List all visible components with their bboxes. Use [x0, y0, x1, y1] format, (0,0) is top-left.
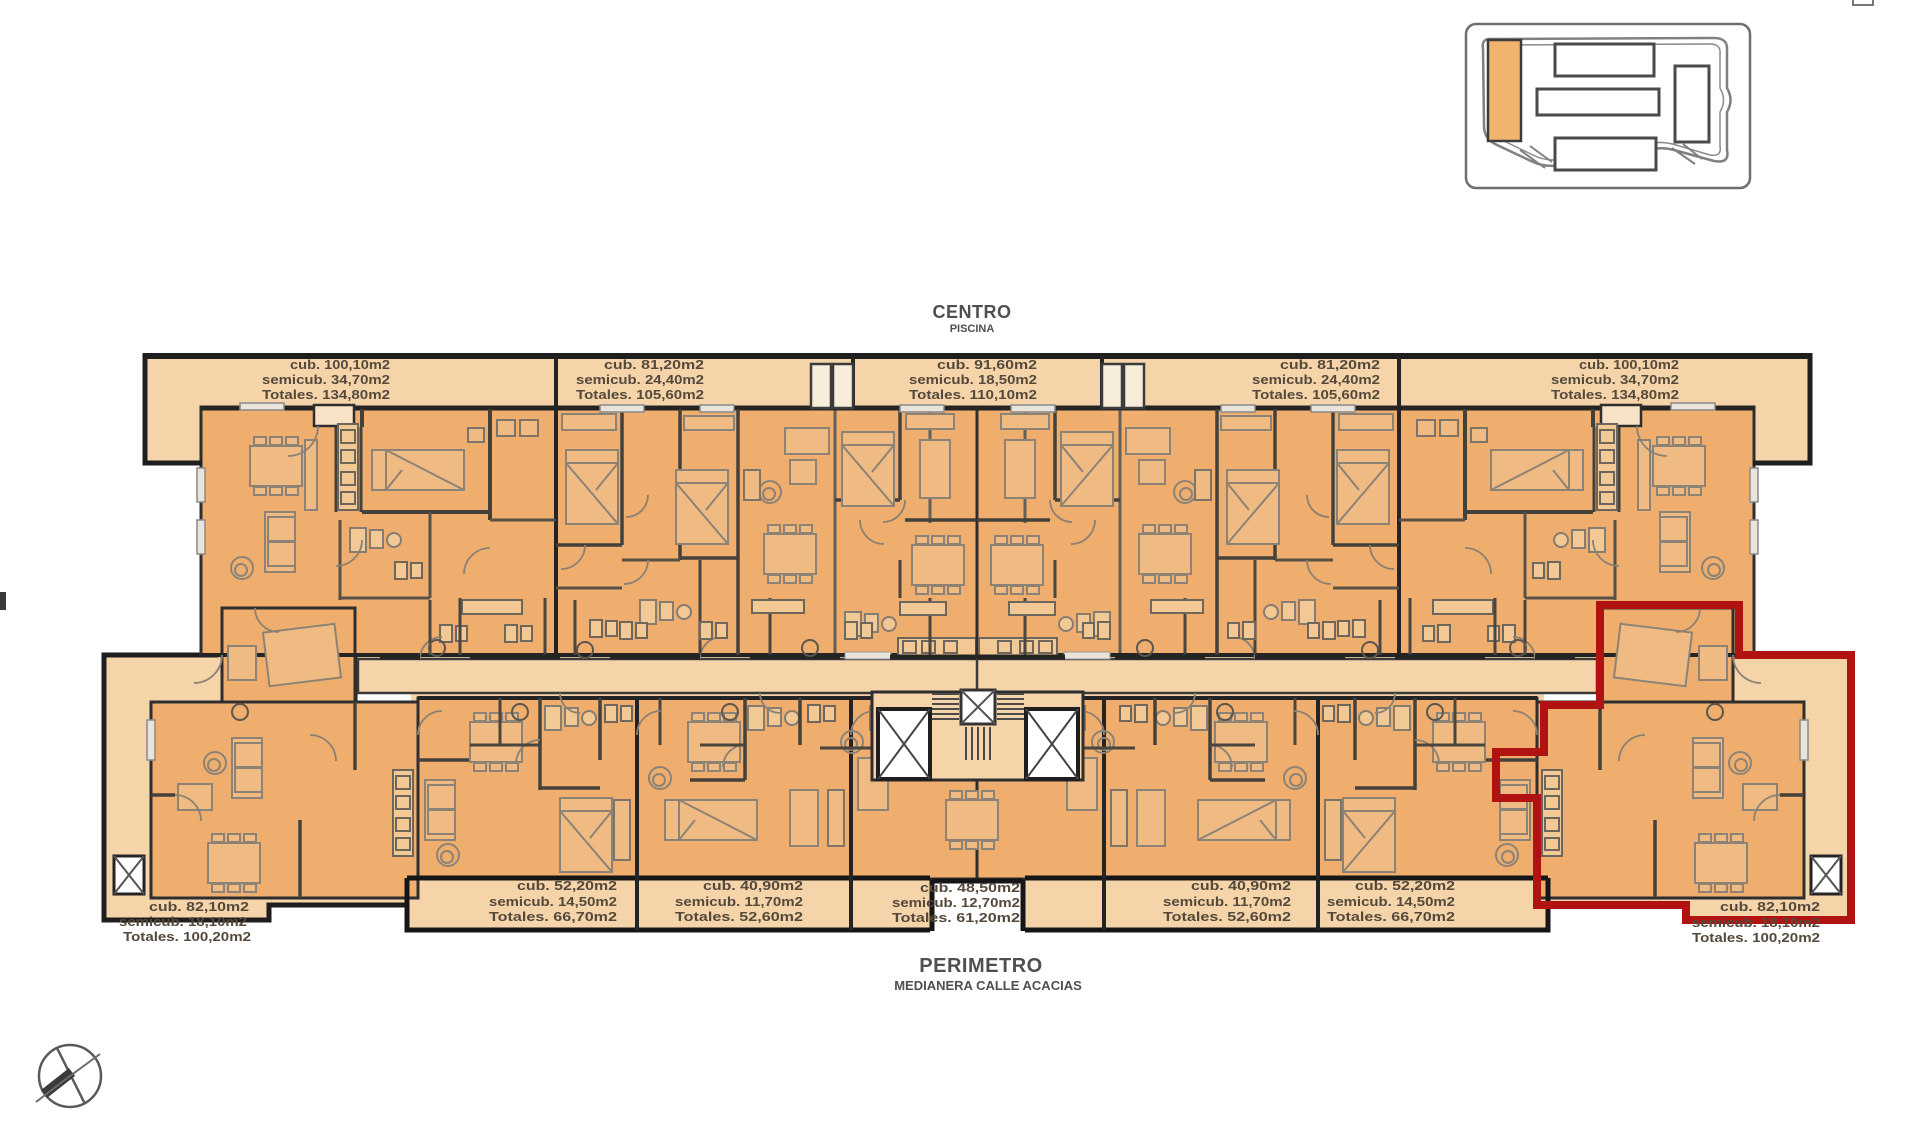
- svg-text:semicub. 34,70m2: semicub. 34,70m2: [1551, 372, 1679, 387]
- svg-text:cub. 82,10m2: cub. 82,10m2: [149, 899, 249, 914]
- svg-text:Totales. 52,60m2: Totales. 52,60m2: [1163, 909, 1291, 924]
- svg-text:semicub. 14,50m2: semicub. 14,50m2: [489, 894, 617, 909]
- svg-text:semicub. 18,10m2: semicub. 18,10m2: [119, 914, 247, 929]
- svg-text:CENTRO: CENTRO: [933, 302, 1012, 322]
- svg-text:PISCINA: PISCINA: [950, 323, 995, 335]
- svg-text:Totales. 61,20m2: Totales. 61,20m2: [892, 910, 1020, 925]
- svg-text:Totales. 134,80m2: Totales. 134,80m2: [262, 387, 390, 402]
- svg-text:semicub. 24,40m2: semicub. 24,40m2: [576, 372, 704, 387]
- svg-text:semicub. 24,40m2: semicub. 24,40m2: [1252, 372, 1380, 387]
- svg-text:cub. 40,90m2: cub. 40,90m2: [1191, 878, 1291, 893]
- svg-text:cub. 52,20m2: cub. 52,20m2: [1355, 878, 1455, 893]
- svg-text:semicub. 34,70m2: semicub. 34,70m2: [262, 372, 390, 387]
- svg-text:cub. 100,10m2: cub. 100,10m2: [290, 357, 390, 372]
- svg-text:Totales. 100,20m2: Totales. 100,20m2: [123, 929, 251, 944]
- svg-text:semicub. 12,70m2: semicub. 12,70m2: [892, 895, 1020, 910]
- svg-text:cub. 100,10m2: cub. 100,10m2: [1579, 357, 1679, 372]
- svg-text:MEDIANERA CALLE ACACIAS: MEDIANERA CALLE ACACIAS: [894, 978, 1082, 993]
- svg-text:Totales. 100,20m2: Totales. 100,20m2: [1692, 930, 1820, 945]
- svg-text:semicub. 14,50m2: semicub. 14,50m2: [1327, 894, 1455, 909]
- svg-text:Totales. 52,60m2: Totales. 52,60m2: [675, 909, 803, 924]
- svg-text:semicub. 18,50m2: semicub. 18,50m2: [909, 372, 1037, 387]
- svg-text:Totales. 66,70m2: Totales. 66,70m2: [1327, 909, 1455, 924]
- svg-text:cub. 81,20m2: cub. 81,20m2: [1280, 357, 1380, 372]
- svg-text:semicub. 11,70m2: semicub. 11,70m2: [1163, 894, 1291, 909]
- svg-text:cub. 52,20m2: cub. 52,20m2: [517, 878, 617, 893]
- svg-text:cub. 48,50m2: cub. 48,50m2: [920, 880, 1020, 895]
- svg-text:cub. 91,60m2: cub. 91,60m2: [937, 357, 1037, 372]
- svg-text:Totales. 66,70m2: Totales. 66,70m2: [489, 909, 617, 924]
- svg-text:Totales. 110,10m2: Totales. 110,10m2: [909, 387, 1037, 402]
- svg-text:semicub. 11,70m2: semicub. 11,70m2: [675, 894, 803, 909]
- svg-text:Totales. 134,80m2: Totales. 134,80m2: [1551, 387, 1679, 402]
- svg-text:PERIMETRO: PERIMETRO: [919, 955, 1042, 977]
- svg-text:semicub. 18,10m2: semicub. 18,10m2: [1692, 915, 1820, 930]
- svg-text:cub. 81,20m2: cub. 81,20m2: [604, 357, 704, 372]
- svg-text:Totales. 105,60m2: Totales. 105,60m2: [576, 387, 704, 402]
- svg-text:cub. 82,10m2: cub. 82,10m2: [1720, 899, 1820, 914]
- svg-text:Totales. 105,60m2: Totales. 105,60m2: [1252, 387, 1380, 402]
- svg-text:cub. 40,90m2: cub. 40,90m2: [703, 878, 803, 893]
